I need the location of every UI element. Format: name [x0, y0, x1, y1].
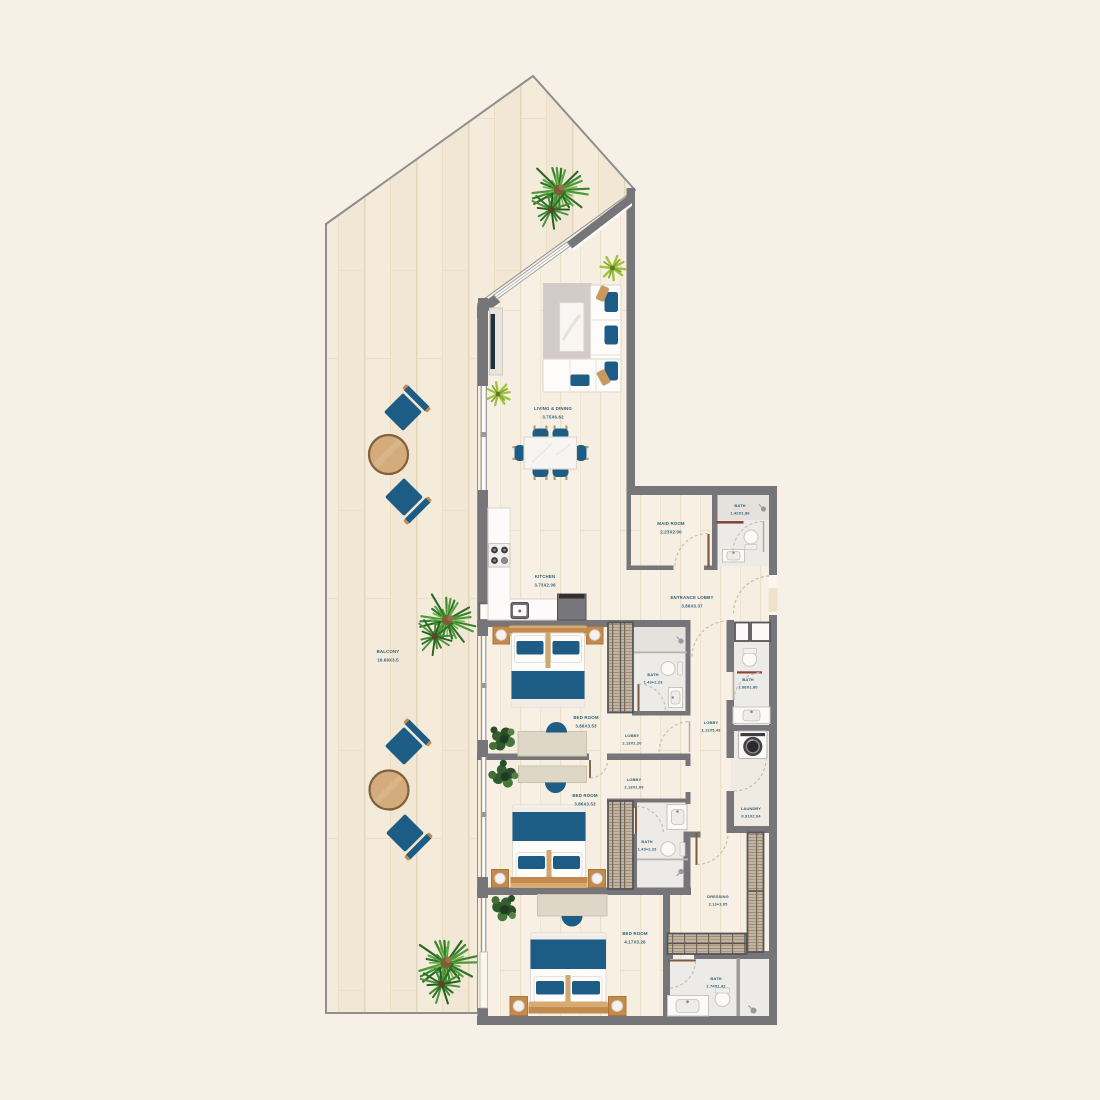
svg-text:LIVING & DINING: LIVING & DINING	[534, 406, 572, 411]
svg-text:3.86X3.37: 3.86X3.37	[681, 604, 703, 609]
svg-text:BALCONY: BALCONY	[377, 649, 400, 654]
svg-text:3.75X6.62: 3.75X6.62	[542, 415, 564, 420]
svg-text:0.91X2.04: 0.91X2.04	[741, 814, 761, 819]
svg-text:2.13+3.05: 2.13+3.05	[709, 902, 728, 907]
svg-text:LOBBY: LOBBY	[627, 777, 642, 782]
svg-text:BATH: BATH	[742, 677, 753, 682]
svg-text:BATH: BATH	[641, 839, 652, 844]
svg-text:2.74X1.42: 2.74X1.42	[706, 984, 726, 989]
svg-text:BED ROOM: BED ROOM	[572, 793, 598, 798]
svg-text:3.86X3.53: 3.86X3.53	[575, 724, 597, 729]
svg-text:LOBBY: LOBBY	[625, 733, 640, 738]
svg-text:2.13X1.09: 2.13X1.09	[624, 785, 644, 790]
svg-text:1.42X1.86: 1.42X1.86	[730, 511, 750, 516]
svg-text:MAID ROOM: MAID ROOM	[657, 521, 685, 526]
svg-text:3.86X3.53: 3.86X3.53	[574, 802, 596, 807]
svg-text:1.43+2.23: 1.43+2.23	[638, 847, 657, 852]
svg-text:DRESSING: DRESSING	[707, 894, 729, 899]
svg-text:BED ROOM: BED ROOM	[622, 931, 648, 936]
svg-text:BATH: BATH	[710, 976, 721, 981]
svg-text:LOBBY: LOBBY	[704, 720, 719, 725]
svg-text:16.69X3.5: 16.69X3.5	[377, 658, 399, 663]
svg-text:KITCHEN: KITCHEN	[535, 574, 556, 579]
svg-text:2.13X1.20: 2.13X1.20	[622, 741, 642, 746]
svg-text:BATH: BATH	[734, 503, 745, 508]
svg-text:2.23X2.00: 2.23X2.00	[660, 530, 682, 535]
svg-text:1.43+2.23: 1.43+2.23	[644, 680, 663, 685]
svg-text:ENTRANCE LOBBY: ENTRANCE LOBBY	[670, 595, 713, 600]
svg-text:4.17X3.26: 4.17X3.26	[624, 940, 646, 945]
svg-text:2.08X1.80: 2.08X1.80	[738, 685, 758, 690]
svg-text:3.73X2.06: 3.73X2.06	[534, 583, 556, 588]
svg-text:LAUNDRY: LAUNDRY	[741, 806, 761, 811]
svg-text:1.11X5.43: 1.11X5.43	[702, 728, 722, 733]
svg-text:BATH: BATH	[647, 672, 658, 677]
svg-text:BED ROOM: BED ROOM	[573, 715, 599, 720]
